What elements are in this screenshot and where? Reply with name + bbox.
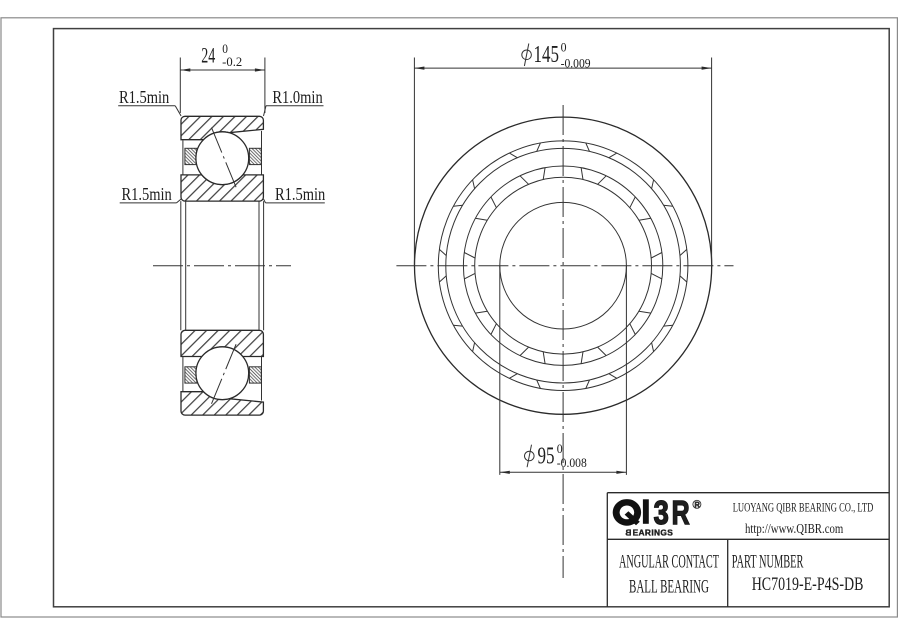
svg-text:0: 0 [222,42,228,56]
svg-text:LUOYANG QIBR BEARING CO., LTD: LUOYANG QIBR BEARING CO., LTD [733,500,874,514]
svg-text:0: 0 [557,441,563,456]
svg-text:0: 0 [561,39,567,54]
svg-text:BALL BEARING: BALL BEARING [629,577,709,598]
svg-text:145: 145 [534,41,560,68]
svg-text:95: 95 [538,443,555,470]
svg-text:-0.009: -0.009 [561,55,591,70]
svg-text:3: 3 [654,494,669,531]
svg-text:HC7019-E-P4S-DB: HC7019-E-P4S-DB [752,574,864,595]
svg-text:PART NUMBER: PART NUMBER [732,552,804,573]
svg-text:EARINGS: EARINGS [633,527,674,537]
svg-text:ANGULAR CONTACT: ANGULAR CONTACT [619,552,719,573]
svg-text:-0.008: -0.008 [557,455,587,470]
svg-text:R: R [672,494,690,531]
svg-text:R1.5min: R1.5min [122,184,172,204]
svg-text:24: 24 [201,42,215,67]
svg-text:R1.5min: R1.5min [119,87,169,107]
svg-text:R1.5min: R1.5min [275,184,325,204]
svg-text:-0.2: -0.2 [222,55,242,69]
svg-text:http://www.QIBR.com: http://www.QIBR.com [745,521,844,536]
svg-text:R1.0min: R1.0min [272,87,322,107]
svg-text:B: B [625,527,631,537]
svg-text:R: R [695,502,700,509]
